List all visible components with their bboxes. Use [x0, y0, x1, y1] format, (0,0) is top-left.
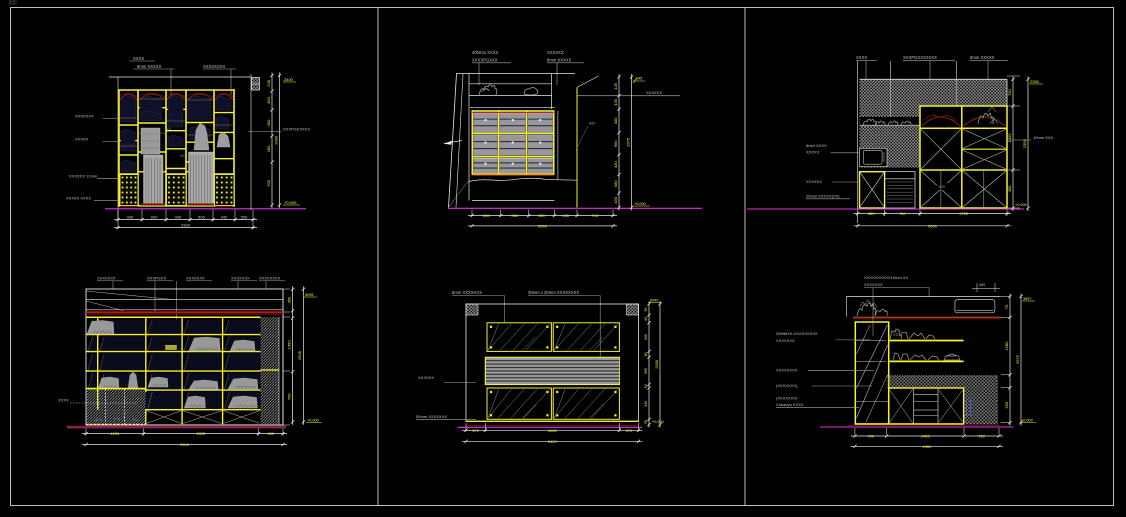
svg-text:40: 40: [644, 317, 648, 321]
svg-text:1450: 1450: [921, 434, 931, 439]
svg-text:700: 700: [286, 393, 291, 400]
svg-text:5mm XXXX: 5mm XXXX: [806, 143, 827, 148]
svg-text:XXXXX: XXXXX: [806, 150, 820, 155]
svg-text:50mm XXXXXXX: 50mm XXXXXXX: [416, 414, 447, 419]
svg-text:450: 450: [267, 431, 274, 436]
svg-text:125: 125: [613, 82, 618, 89]
svg-text:370: 370: [626, 428, 633, 433]
svg-text:400mm XXXX: 400mm XXXX: [472, 50, 499, 55]
svg-text:760: 760: [978, 434, 985, 439]
svg-text:430: 430: [613, 196, 618, 203]
svg-text:1200: 1200: [110, 431, 120, 436]
svg-text:360: 360: [286, 296, 291, 303]
svg-text:240: 240: [266, 79, 271, 86]
svg-text:550: 550: [483, 213, 490, 218]
svg-text:XXXXXXXXXX10mm XX: XXXXXXXXXX10mm XX: [864, 275, 909, 280]
svg-text:6040: 6040: [650, 299, 658, 303]
svg-text:700: 700: [266, 179, 271, 186]
svg-text:XXXXPGXXX: XXXXPGXXX: [472, 58, 498, 63]
svg-text:2400: 2400: [284, 77, 294, 82]
svg-text:XXXX: XXXX: [58, 398, 69, 403]
svg-text:2680: 2680: [548, 428, 558, 433]
svg-text:+0.000: +0.000: [634, 202, 646, 206]
svg-text:XXXX: XXXX: [856, 55, 867, 60]
svg-text:430: 430: [613, 161, 618, 168]
svg-text:70: 70: [1004, 304, 1009, 309]
svg-text:530: 530: [644, 334, 648, 340]
svg-text:2675: 2675: [625, 137, 630, 147]
svg-text:450: 450: [1007, 185, 1012, 192]
svg-text:2508: 2508: [297, 350, 302, 360]
svg-text:XXXXXXXX: XXXXXXXX: [259, 276, 281, 281]
svg-text:700: 700: [899, 211, 906, 216]
svg-text:XXXXXX: XXXXXX: [646, 90, 662, 95]
svg-text:1580: 1580: [1004, 341, 1009, 351]
svg-text:950: 950: [1004, 401, 1009, 408]
svg-text:440: 440: [175, 214, 182, 219]
svg-text:XXX: XXX: [893, 332, 901, 337]
svg-text:XXXXXX: XXXXXX: [806, 179, 822, 184]
svg-text:2025: 2025: [196, 431, 206, 436]
svg-text:3597: 3597: [1023, 297, 1031, 301]
svg-text:710: 710: [592, 213, 599, 218]
svg-text:8mm XXXXX: 8mm XXXXX: [547, 58, 572, 63]
svg-text:30mm x 20mm XXXXXXXX: 30mm x 20mm XXXXXXXX: [528, 290, 579, 295]
svg-text:XXXXXXX: XXXXXXX: [776, 338, 795, 343]
svg-text:550: 550: [511, 213, 518, 218]
svg-text:XXXXXXXX: XXXXXXXX: [776, 368, 798, 373]
svg-text:550: 550: [868, 211, 875, 216]
svg-text:XXXPGXX: XXXPGXX: [147, 276, 166, 281]
svg-text:+0.000: +0.000: [1021, 419, 1033, 423]
svg-text:XXXXXXXX: XXXXXXXX: [203, 64, 226, 69]
svg-text:XXX: XXX: [938, 185, 946, 189]
svg-text:430: 430: [613, 98, 618, 105]
svg-text:+0.000: +0.000: [652, 420, 664, 424]
svg-text:+0.000: +0.000: [1015, 203, 1027, 207]
svg-text:2960: 2960: [922, 444, 932, 449]
svg-text:2400: 2400: [654, 359, 659, 369]
svg-text:5mm XXXXXXX: 5mm XXXXXXX: [452, 290, 482, 295]
svg-text:90: 90: [644, 308, 648, 312]
svg-text:400: 400: [979, 283, 985, 287]
svg-text:650: 650: [613, 140, 618, 147]
svg-text:XXXXXX: XXXXXX: [547, 50, 564, 55]
svg-text:XX: XX: [166, 127, 171, 131]
svg-text:60: 60: [644, 384, 648, 388]
svg-text:600: 600: [589, 121, 595, 125]
svg-text:XXXXXX: XXXXXX: [418, 375, 434, 380]
svg-text:XXXPGXXXXXXX: XXXPGXXXXXXX: [903, 55, 937, 60]
svg-text:XXXXXXX: XXXXXXX: [75, 114, 94, 119]
svg-text:900: 900: [151, 214, 158, 219]
svg-text:580: 580: [613, 180, 618, 187]
svg-text:1750: 1750: [959, 211, 969, 216]
svg-text:700: 700: [867, 434, 874, 439]
svg-text:550: 550: [538, 213, 545, 218]
svg-text:XXXXX XXXX: XXXXX XXXX: [66, 196, 91, 201]
svg-text:XXXXXX 12mm: XXXXXX 12mm: [69, 174, 98, 179]
svg-text:XXXXXXX: XXXXXXX: [231, 276, 250, 281]
svg-text:(XXXXXXX): (XXXXXXX): [776, 383, 798, 388]
svg-text:530: 530: [644, 401, 648, 407]
svg-text:XXXX: XXXX: [133, 56, 144, 61]
svg-text:1400: 1400: [1007, 133, 1012, 143]
svg-text:8mm XXXXX: 8mm XXXXX: [137, 64, 162, 69]
svg-text:440: 440: [221, 214, 228, 219]
svg-text:370: 370: [472, 428, 479, 433]
svg-text:+0.000: +0.000: [307, 419, 319, 423]
svg-text:450: 450: [266, 96, 271, 103]
svg-text:XXXXXXX: XXXXXXX: [97, 276, 116, 281]
svg-text:XXXXXXX: XXXXXXX: [864, 282, 883, 287]
svg-text:XXXXX: XXXXX: [75, 137, 89, 142]
svg-text:400: 400: [266, 119, 271, 126]
svg-text:80: 80: [644, 352, 648, 356]
svg-text:500: 500: [241, 214, 248, 219]
svg-text:1450: 1450: [286, 340, 291, 350]
svg-text:2900: 2900: [181, 222, 191, 227]
svg-text:8mm XXXXX: 8mm XXXXX: [970, 55, 995, 60]
svg-text:95: 95: [644, 420, 648, 424]
svg-text:5095: 5095: [305, 293, 313, 297]
svg-text:590: 590: [644, 368, 648, 374]
svg-text:750: 750: [1007, 89, 1012, 96]
svg-text:3000: 3000: [928, 223, 938, 228]
svg-text:10mm XXX: 10mm XXX: [1033, 135, 1054, 140]
svg-text:280: 280: [266, 145, 271, 152]
svg-text:XXXXXXX: XXXXXXX: [186, 276, 205, 281]
svg-text:XX: XX: [180, 154, 185, 158]
svg-text:430: 430: [613, 117, 618, 124]
svg-text:500: 500: [198, 214, 205, 219]
svg-text:Cxbaoyu XXXX: Cxbaoyu XXXX: [776, 402, 804, 407]
svg-text:2350: 2350: [1030, 79, 1040, 84]
svg-text:440: 440: [127, 214, 134, 219]
svg-text:440: 440: [562, 213, 569, 218]
svg-text:5500: 5500: [538, 223, 548, 228]
svg-text:25MMXX.XXXXXXXXX: 25MMXX.XXXXXXXXX: [776, 331, 818, 336]
svg-text:XXXPGXXXXX: XXXPGXXXXX: [283, 127, 310, 132]
svg-text:2400: 2400: [273, 135, 278, 145]
svg-text:(XXXXXXX): (XXXXXXX): [776, 396, 798, 401]
svg-text:2900: 2900: [180, 442, 190, 447]
svg-text:3420: 3420: [548, 439, 558, 444]
svg-text:20mm XXXXX(XX): 20mm XXXXX(XX): [806, 194, 840, 199]
svg-text:+0.000: +0.000: [284, 200, 297, 205]
svg-text:2675: 2675: [1015, 354, 1020, 364]
